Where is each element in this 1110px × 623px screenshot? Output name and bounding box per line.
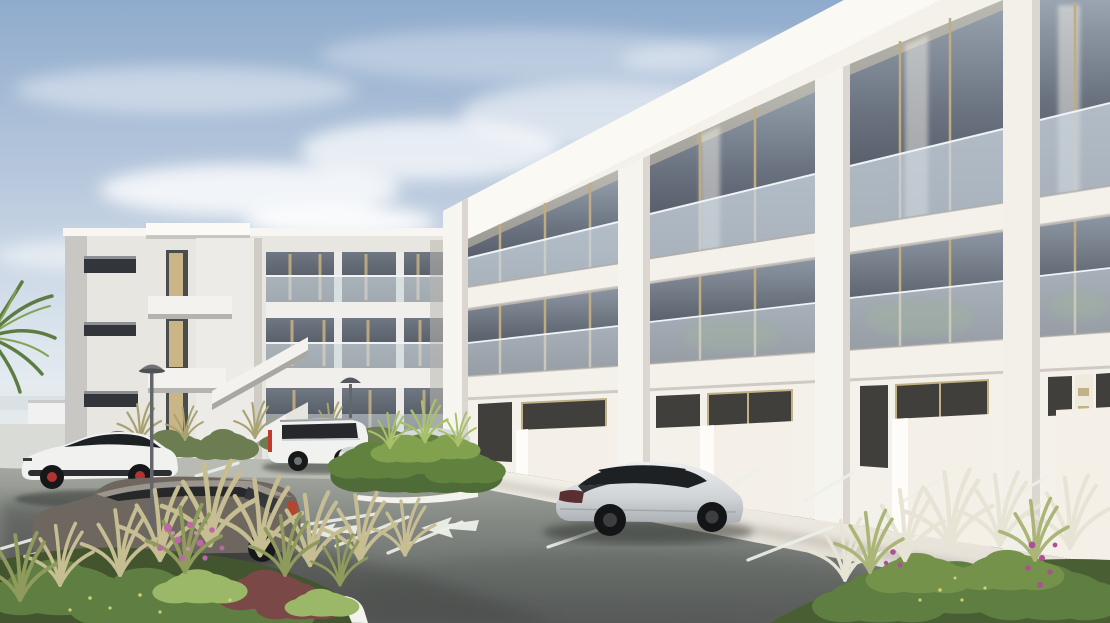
apartment-complex-rendering <box>0 0 1110 623</box>
stair-tower-doors <box>166 250 188 444</box>
left-building-corner-shade <box>65 232 87 464</box>
sedan-tail-lights <box>559 490 584 503</box>
rendering-image <box>0 0 1110 623</box>
left-building-parapet <box>63 228 445 236</box>
